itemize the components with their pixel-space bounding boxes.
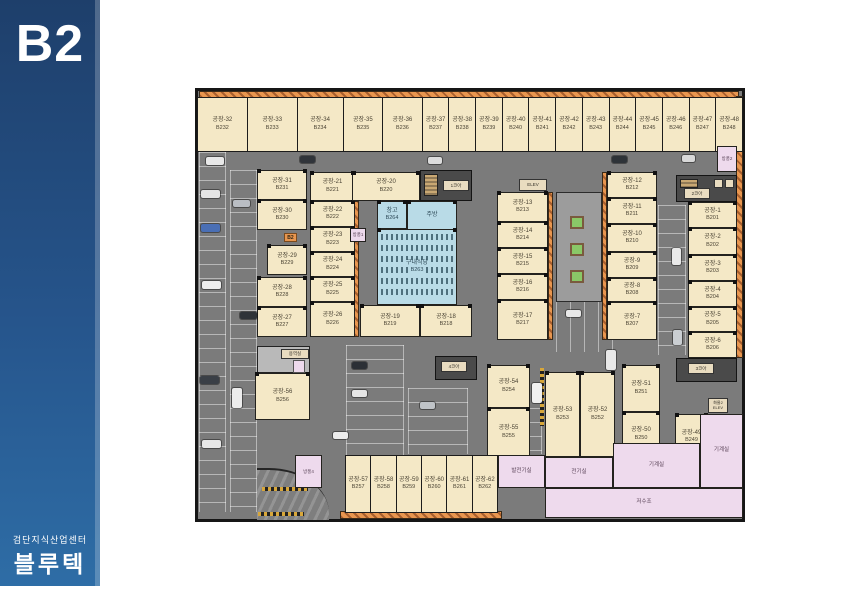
car [200,376,219,384]
room-code: B233 [266,125,279,132]
room-B228: 공장-28B228 [257,277,307,307]
room-label: 공장-48 [719,117,739,125]
room-B245: 공장-45B245 [636,98,663,151]
truck [232,388,242,408]
room-code: B256 [276,397,289,404]
room-label: 공장-37 [426,117,446,125]
room-label: 공장-47 [693,117,713,125]
room-B261: 공장-61B261 [447,456,472,512]
core-2-label: 2코아 [684,188,710,199]
stairs [680,179,698,188]
room-code: B227 [276,322,289,329]
room-code: B219 [384,321,397,328]
room-code: B205 [706,320,719,327]
room-label: 공장-1 [704,208,720,216]
room-B219: 공장-19B219 [360,305,420,337]
room-label: 공장-54 [499,379,519,387]
room-code: B261 [453,484,466,491]
room-code: B228 [276,292,289,299]
room-B231: 공장-31B231 [257,170,307,200]
room-label: 공장-6 [704,338,720,346]
room-B214: 공장-14B214 [497,222,548,248]
floor-level-label: B2 [0,14,100,74]
room-label: 공장-10 [622,231,642,239]
room-label: 공장-57 [348,477,368,485]
room-label: 공장-50 [631,427,651,435]
room-code: B255 [502,433,515,440]
room-code: B208 [626,290,639,297]
room-label: 공장-12 [622,178,642,186]
freight-elevator: 화물2 ELEV [708,398,728,413]
truck [672,248,681,265]
room-B213: 공장-13B213 [497,192,548,222]
car [201,190,220,198]
room-code: B215 [516,261,529,268]
room-label: 방풍4 [303,469,314,475]
room-label: 공장-32 [213,117,233,125]
room-B258: 공장-58B258 [371,456,396,512]
car [612,156,627,163]
room-code: B263 [409,267,426,274]
room-B254: 공장-54B254 [487,365,530,408]
room-label: 공장-52 [588,407,608,415]
room-B253: 공장-53B253 [545,372,580,457]
room-label: 공장-3 [704,261,720,269]
room-code: B207 [626,321,639,328]
room-code: B206 [706,345,719,352]
core-label-text: 4코아 [449,364,460,369]
room-label: 주방 [426,212,437,220]
room-B224: 공장-24B224 [310,252,355,277]
car [352,390,367,397]
room-B257: 공장-57B257 [346,456,371,512]
room-code: B226 [326,320,339,327]
room-label: 공장-60 [424,477,444,485]
room-label: 공장-7 [624,314,640,322]
room-label: 공장-18 [436,314,456,322]
room-code: B260 [428,484,441,491]
room-label: 공장-59 [399,477,419,485]
car [682,155,695,162]
room-label: 공장-58 [374,477,394,485]
room-B229: 공장-29B229 [267,245,307,275]
core-1-label: 1코아 [443,180,469,191]
core-3-label: 3코아 [688,363,714,374]
core-label-text: 2코아 [692,191,703,196]
floor-marker-text: B2 [287,235,293,241]
car [420,402,435,409]
room-code: B209 [626,265,639,272]
service-room-label: 용역실 [281,349,309,359]
room-label: 공장-39 [479,117,499,125]
room-code: B246 [669,125,682,132]
building-name: 블루텍 [0,545,100,579]
room-label: 공장-53 [553,407,573,415]
room-B220: 공장-20B220 [352,172,420,201]
room-code: B262 [478,484,491,491]
room-label: 공장-28 [272,285,292,293]
vestibule-2: 방풍2 [717,146,737,172]
room-code: B220 [380,187,393,194]
core-label-text: 1코아 [451,183,462,188]
room-label: 공장-27 [272,315,292,323]
room-label: 공장-62 [475,477,495,485]
room-label: 용역실 [289,351,301,356]
room-label: 공장-26 [323,312,343,320]
room-label: 공장-56 [273,389,293,397]
room-B251: 공장-51B251 [622,365,660,412]
room-mechanical-1: 기계실 [613,443,700,488]
room-label: 공장-2 [704,234,720,242]
room-B207: 공장-7B207 [607,302,657,340]
floor-marker-badge: B2 [284,233,297,242]
crosswalk [258,512,304,516]
room-code: B243 [589,125,602,132]
room-code: B258 [377,484,390,491]
room-B216: 공장-16B216 [497,274,548,300]
stairs [424,174,438,196]
room-B232: 공장-32B232 [198,98,248,151]
room-label: 공장-23 [323,232,343,240]
room-code: B221 [326,187,339,194]
room-label: 공장-9 [624,258,640,266]
room-code: B238 [456,125,469,132]
room-B239: 공장-39B239 [476,98,503,151]
room-label: 공장-34 [310,117,330,125]
room-B211: 공장-11B211 [607,198,657,224]
room-label: 공장-4 [704,287,720,295]
room-water-tank: 저수조 [545,488,743,518]
room-B205: 공장-5B205 [688,307,737,332]
room-code: B217 [516,320,529,327]
side-banner: B2 검단지식산업센터 블루텍 [0,0,100,586]
room-code: B264 [386,215,399,222]
room-code: B250 [635,435,648,442]
room-B256: 공장-56B256 [255,373,310,420]
room-label: 공장-16 [513,280,533,288]
room-label: 공장-5 [704,312,720,320]
small-room [293,360,305,373]
room-code: B216 [516,287,529,294]
room-B210: 공장-10B210 [607,224,657,252]
room-code: B245 [643,125,656,132]
room-B217: 공장-17B217 [497,300,548,340]
planter [570,216,584,229]
room-B221: 공장-21B221 [310,172,355,201]
room-B263-cafeteria: 구내식당 B263 [377,229,457,305]
room-code: B230 [276,215,289,222]
room-B238: 공장-38B238 [449,98,476,151]
room-label: 공장-15 [513,254,533,262]
room-label: 공장-29 [277,253,297,261]
room-B244: 공장-44B244 [610,98,637,151]
top-room-row: 공장-32B232 공장-33B233 공장-34B234 공장-35B235 … [197,97,743,152]
room-code: B253 [556,415,569,422]
room-B237: 공장-37B237 [423,98,450,151]
room-label: 방풍1 [353,232,364,238]
car [240,312,257,319]
room-label: 공장-61 [450,477,470,485]
room-code: B225 [326,290,339,297]
room-B235: 공장-35B235 [344,98,384,151]
room-B242: 공장-42B242 [556,98,583,151]
room-B215: 공장-15B215 [497,248,548,274]
room-code: B242 [563,125,576,132]
room-B202: 공장-2B202 [688,228,737,255]
parking-stalls [199,152,226,512]
room-code: B257 [352,484,365,491]
vestibule-4: 방풍4 [295,455,322,488]
room-B212: 공장-12B212 [607,172,657,198]
room-B233: 공장-33B233 [248,98,298,151]
room-code: B236 [396,125,409,132]
car [566,310,581,317]
room-code: B239 [482,125,495,132]
room-code: B234 [314,125,327,132]
room-label: 공장-14 [513,228,533,236]
room-code: B247 [696,125,709,132]
room-label: 공장-11 [622,204,641,212]
room-B241: 공장-41B241 [529,98,556,151]
room-code: B203 [706,268,719,275]
room-code: B211 [626,211,638,218]
parking-stalls [408,388,468,454]
room-label: 공장-44 [612,117,632,125]
room-code: B244 [616,125,629,132]
room-B240: 공장-40B240 [503,98,530,151]
core-label-text: 3코아 [696,366,707,371]
car [352,362,367,369]
truck [532,383,542,403]
car [202,440,221,448]
room-label: 공장-21 [323,179,343,187]
room-label: 공장-46 [666,117,686,125]
room-label: 창고 [386,208,397,216]
room-label: 공장-51 [631,381,651,389]
room-B225: 공장-25B225 [310,277,355,302]
room-label: 기계실 [649,462,664,469]
room-label: 공장-17 [513,313,533,321]
room-B222: 공장-22B222 [310,201,355,227]
room-kitchen: 주방 [407,201,457,231]
room-B204: 공장-4B204 [688,281,737,307]
elevator-label: ELEV [527,182,539,187]
room-label: 공장-25 [323,282,343,290]
room-label: 공장-31 [272,178,292,186]
room-label: 공장-43 [586,117,606,125]
room-label: 방풍2 [722,156,733,162]
room-code: B213 [516,207,529,214]
room-B230: 공장-30B230 [257,200,307,230]
room-label: 공장-49 [682,430,702,438]
room-B248: 공장-48B248 [716,98,742,151]
room-electrical: 전기실 [545,457,613,488]
room-B252: 공장-52B252 [580,372,615,457]
car [206,157,224,165]
room-label: 공장-13 [513,200,533,208]
room-label: 공장-22 [323,207,343,215]
room-B223: 공장-23B223 [310,227,355,252]
room-B218: 공장-18B218 [420,305,472,337]
room-code: B251 [635,389,648,396]
car [333,432,348,439]
truck [606,350,616,370]
room-generator: 발전기실 [498,455,545,488]
room-B247: 공장-47B247 [690,98,717,151]
room-code: B201 [706,215,719,222]
room-code: B210 [626,238,639,245]
corridor-hatch-mid [548,192,553,340]
room-code: B231 [276,185,289,192]
room-B262: 공장-62B262 [473,456,497,512]
room-B255: 공장-55B255 [487,408,530,457]
room-B234: 공장-34B234 [298,98,344,151]
room-label: 기계실 [714,447,729,454]
room-B226: 공장-26B226 [310,302,355,337]
car [233,200,250,207]
room-label: 공장-8 [624,283,640,291]
room-label: 공장-24 [323,257,343,265]
elevator: ELEV [519,179,547,191]
room-label: 공장-19 [380,314,400,322]
room-B264-storage: 창고B264 [377,201,407,229]
room-B259: 공장-59B259 [397,456,422,512]
room-label: 공장-35 [353,117,373,125]
room-code: B202 [706,242,719,249]
car [428,157,442,164]
room-code: B254 [502,387,515,394]
room-label: 공장-45 [639,117,659,125]
room-B209: 공장-9B209 [607,252,657,278]
elevator-shaft [725,179,734,188]
room-code: B212 [626,185,639,192]
room-B203: 공장-3B203 [688,255,737,281]
room-label: 공장-55 [499,425,519,433]
room-label: 공장-38 [452,117,472,125]
car [202,281,221,289]
room-B236: 공장-36B236 [383,98,423,151]
room-B208: 공장-8B208 [607,278,657,302]
room-code: B241 [536,125,549,132]
room-label: 저수조 [636,499,651,506]
room-label: 발전기실 [511,468,531,475]
room-code: B229 [281,260,294,267]
room-label: 공장-30 [272,208,292,216]
elevator-shaft [714,179,723,188]
room-label: 공장-41 [532,117,552,125]
room-label: 구내식당 [404,260,430,268]
room-code: B252 [591,415,604,422]
car [201,224,220,232]
room-label: 전기실 [571,469,586,476]
room-code: B237 [429,125,442,132]
room-B246: 공장-46B246 [663,98,690,151]
planter [570,243,584,256]
room-code: B224 [326,265,339,272]
planter [570,270,584,283]
room-B206: 공장-6B206 [688,332,737,358]
vestibule-1: 방풍1 [350,228,366,242]
room-label: 공장-33 [262,117,282,125]
room-code: B248 [723,125,736,132]
room-label: 공장-36 [393,117,413,125]
core-4-label: 4코아 [441,361,467,372]
room-mechanical-2: 기계실 [700,414,743,488]
room-code: B232 [216,125,229,132]
room-B260: 공장-60B260 [422,456,447,512]
room-code: B218 [440,321,453,328]
bottom-room-row: 공장-57B257 공장-58B258 공장-59B259 공장-60B260 … [345,455,498,513]
room-B243: 공장-43B243 [583,98,610,151]
room-code: B235 [356,125,369,132]
room-B201: 공장-1B201 [688,202,737,228]
car [300,156,315,163]
room-code: B240 [509,125,522,132]
room-label: 공장-20 [376,179,396,187]
room-code: B259 [402,484,415,491]
room-label: 공장-40 [506,117,526,125]
room-code: B214 [516,235,529,242]
room-code: B223 [326,240,339,247]
freight-elevator-label: ELEV [713,406,723,411]
car [673,330,682,345]
room-code: B222 [326,214,339,221]
room-B227: 공장-27B227 [257,307,307,337]
parking-stalls [230,170,257,512]
room-label: 공장-42 [559,117,579,125]
room-code: B204 [706,294,719,301]
